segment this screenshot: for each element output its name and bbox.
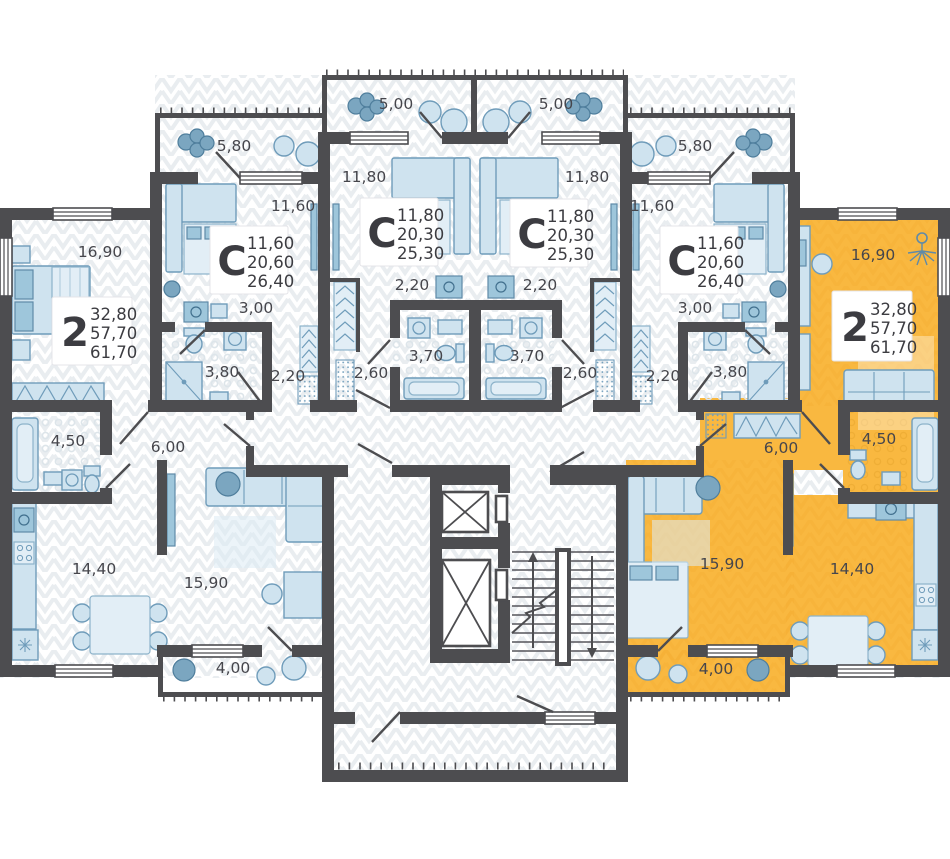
area-label: 14,40 (72, 560, 116, 578)
plant-icon (696, 476, 720, 500)
unit-area-living: 11,80 (547, 207, 594, 226)
unit-card[interactable]: С 11,60 20,60 26,40 (660, 226, 744, 294)
window-icon (838, 208, 897, 220)
balcony-chair (419, 101, 441, 123)
hanger-rack (632, 326, 650, 372)
area-label: 6,00 (764, 439, 799, 457)
balcony-chair (669, 665, 687, 683)
plant-icon (216, 472, 240, 496)
unit-area-total: 25,30 (547, 245, 594, 264)
tv-unit (611, 204, 617, 270)
unit-area-living: 32,80 (90, 305, 137, 324)
area-label: 3,70 (510, 347, 545, 365)
balcony-chair (296, 142, 320, 166)
unit-area-main: 20,60 (697, 253, 744, 272)
unit-area-total: 26,40 (247, 272, 294, 291)
area-label: 5,00 (379, 95, 414, 113)
area-label: 3,00 (678, 299, 713, 317)
unit-area-main: 20,30 (397, 225, 444, 244)
sink-icon (438, 320, 462, 334)
unit-area-main: 20,60 (247, 253, 294, 272)
area-label: 11,80 (342, 168, 386, 186)
window-icon (192, 645, 243, 657)
closet-icon (734, 414, 800, 438)
area-label: 15,90 (700, 555, 744, 573)
rug (214, 516, 276, 568)
area-label: 2,60 (563, 364, 598, 382)
balcony-chair (441, 109, 467, 135)
shoe-rack (336, 360, 354, 402)
unit-card[interactable]: С 11,80 20,30 25,30 (510, 199, 594, 267)
area-label: 5,00 (539, 95, 574, 113)
area-label: 2,20 (523, 276, 558, 294)
fridge-icon (12, 630, 38, 660)
window-icon (545, 712, 595, 724)
washer-icon (520, 318, 542, 338)
unit-type: С (217, 239, 246, 285)
balcony-chair (636, 656, 660, 680)
unit-area-total: 61,70 (870, 338, 917, 357)
unit-area-living: 11,80 (397, 206, 444, 225)
unit-area-living: 32,80 (870, 300, 917, 319)
unit-type: 2 (61, 310, 89, 356)
sink-icon (44, 472, 62, 485)
window-icon (53, 208, 112, 220)
unit-area-living: 11,60 (697, 234, 744, 253)
tv-unit (167, 474, 175, 546)
area-label: 4,50 (51, 432, 86, 450)
area-label: 16,90 (851, 246, 895, 264)
bathtub-inner (17, 424, 33, 482)
area-label: 15,90 (184, 574, 228, 592)
bathtub-inner (491, 382, 541, 395)
plant-icon (770, 281, 786, 297)
unit-area-total: 25,30 (397, 244, 444, 263)
plant-icon (164, 281, 180, 297)
unit-card[interactable]: 2 32,80 57,70 61,70 (52, 297, 137, 365)
unit-area-total: 61,70 (90, 343, 137, 362)
closet (334, 282, 356, 350)
window-icon (0, 238, 12, 296)
unit-area-living: 11,60 (247, 234, 294, 253)
shower-icon (748, 362, 784, 402)
plant-icon (173, 659, 195, 681)
window-icon (542, 132, 600, 144)
toilet-icon (850, 450, 866, 479)
unit-card[interactable]: С 11,80 20,30 25,30 (360, 198, 444, 266)
window-icon (55, 665, 113, 677)
unit-area-total: 26,40 (697, 272, 744, 291)
balcony-chair (257, 667, 275, 685)
area-label: 14,40 (830, 560, 874, 578)
area-label: 11,60 (630, 197, 674, 215)
area-label: 3,70 (409, 347, 444, 365)
balcony-chair (483, 109, 509, 135)
area-label: 16,90 (78, 243, 122, 261)
bathtub-inner (409, 382, 459, 395)
area-label: 2,60 (354, 364, 389, 382)
balcony-chair (509, 101, 531, 123)
nightstand (12, 246, 30, 263)
balcony-chair (656, 136, 676, 156)
window-icon (938, 238, 950, 296)
washer-icon (408, 318, 430, 338)
shoe-rack (596, 360, 614, 402)
unit-type: С (517, 212, 546, 258)
kitchenette (488, 276, 514, 298)
kitchenette (436, 276, 462, 298)
window-icon (707, 645, 758, 657)
unit-type: С (667, 239, 696, 285)
tv-unit (333, 204, 339, 270)
floor-plan: 16,90 4,50 6,00 14,40 15,90 4,00 5,80 11… (0, 0, 950, 859)
area-label: 2,20 (271, 367, 306, 385)
kitchen-sink-icon (14, 508, 34, 532)
plant-icon (747, 659, 769, 681)
sink-icon (488, 320, 512, 334)
area-label: 5,80 (678, 137, 713, 155)
area-label: 3,80 (205, 363, 240, 381)
closet (594, 282, 616, 350)
unit-area-main: 57,70 (870, 319, 917, 338)
unit-area-main: 20,30 (547, 226, 594, 245)
window-icon (240, 172, 302, 184)
balcony-chair (282, 656, 306, 680)
area-label: 11,60 (271, 197, 315, 215)
fridge-icon (912, 630, 938, 660)
hanger-rack (300, 326, 318, 372)
nightstand (12, 340, 30, 360)
window-icon (837, 665, 895, 677)
stove-icon (916, 584, 936, 606)
area-label: 4,00 (216, 659, 251, 677)
balcony-chair (630, 142, 654, 166)
unit-card[interactable]: С 11,60 20,60 26,40 (210, 226, 294, 294)
unit-type: С (367, 211, 396, 257)
area-label: 6,00 (151, 438, 186, 456)
area-label: 5,80 (217, 137, 252, 155)
stair-stringer (557, 550, 569, 664)
unit-type: 2 (841, 305, 869, 351)
window-icon (350, 132, 408, 144)
bed (626, 562, 688, 638)
area-label: 2,20 (395, 276, 430, 294)
area-label: 3,80 (713, 363, 748, 381)
area-label: 4,00 (699, 660, 734, 678)
bathtub-inner (917, 424, 933, 482)
area-label: 11,80 (565, 168, 609, 186)
stove-icon (14, 542, 34, 564)
washer-icon (62, 470, 82, 490)
sink-icon (882, 472, 900, 485)
shower-icon (166, 362, 202, 402)
area-label: 4,50 (862, 430, 897, 448)
unit-area-main: 57,70 (90, 324, 137, 343)
window-icon (648, 172, 710, 184)
kitchen-counter (914, 498, 938, 630)
area-label: 3,00 (239, 299, 274, 317)
toilet-icon (84, 466, 100, 493)
balcony-chair (274, 136, 294, 156)
area-label: 2,20 (646, 367, 681, 385)
unit-card-highlighted[interactable]: 2 32,80 57,70 61,70 (832, 291, 917, 361)
